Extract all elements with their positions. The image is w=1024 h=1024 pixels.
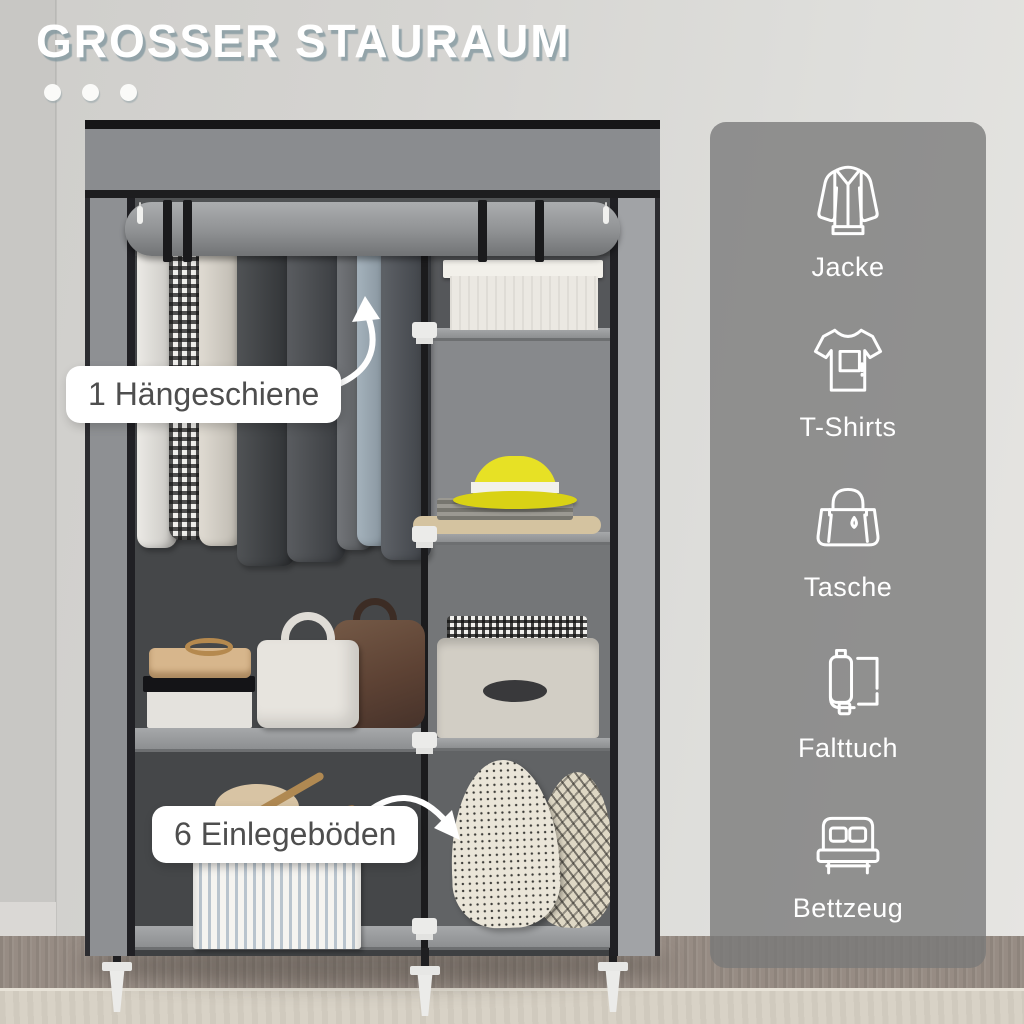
category-label: T-Shirts <box>799 412 896 443</box>
plastic-foot <box>603 968 623 1012</box>
callout-shelves: 6 Einlegeböden <box>152 806 418 863</box>
cream-handbag <box>257 640 359 728</box>
dot-icon <box>120 84 137 101</box>
black-box-lid <box>143 676 255 692</box>
tshirt-icon <box>804 318 892 406</box>
striped-laundry-basket <box>193 855 361 949</box>
pole-connector <box>412 322 437 338</box>
baseboard <box>0 902 56 936</box>
headline-block: GROSSER STAURAUM <box>36 14 571 68</box>
callout-hanging-rail: 1 Hängeschiene <box>66 366 341 423</box>
zipper-pull <box>137 206 143 224</box>
storage-box <box>450 276 598 330</box>
category-label: Jacke <box>811 252 884 283</box>
callout-hanging-rail-label: 1 Hängeschiene <box>88 376 319 412</box>
dot-icon <box>44 84 61 101</box>
category-item-falttuch: Falttuch <box>798 639 898 764</box>
callout-shelves-label: 6 Einlegeböden <box>174 816 396 852</box>
dot-icon <box>82 84 99 101</box>
category-item-tshirts: T-Shirts <box>799 318 896 443</box>
wall-corner-line <box>55 0 57 936</box>
product-scene: GROSSER STAURAUM <box>0 0 1024 1024</box>
plastic-foot <box>107 968 127 1012</box>
category-overlay-panel: Jacke T-Shirts Tasche <box>710 122 986 968</box>
category-item-bettzeug: Bettzeug <box>793 799 904 924</box>
bin-handle-hole <box>483 680 547 702</box>
jacket-icon <box>804 158 892 246</box>
zipper-pull <box>603 206 609 224</box>
bed-icon <box>804 799 892 887</box>
pole-connector <box>412 918 437 934</box>
fabric-wardrobe <box>85 120 660 1010</box>
cover-strap <box>183 200 192 262</box>
yellow-hat-brim <box>453 491 577 509</box>
page-title: GROSSER STAURAUM <box>36 14 571 68</box>
wardrobe-left-side-panel <box>85 198 135 956</box>
plastic-foot-cap <box>598 962 628 971</box>
pole-connector <box>412 526 437 542</box>
left-wall <box>0 0 56 902</box>
rolled-up-cover <box>125 202 620 256</box>
cover-strap <box>478 200 487 262</box>
category-label: Bettzeug <box>793 893 904 924</box>
pole-connector <box>412 732 437 748</box>
wardrobe-top-cover <box>85 120 660 198</box>
category-item-tasche: Tasche <box>804 478 893 603</box>
plastic-foot-cap <box>410 966 440 975</box>
title-dots-decoration <box>44 84 137 101</box>
category-label: Falttuch <box>798 733 898 764</box>
category-label: Tasche <box>804 572 893 603</box>
folded-cloth-icon <box>804 639 892 727</box>
tote-bag-icon <box>804 478 892 566</box>
pole-stub <box>421 948 429 966</box>
cover-strap <box>163 200 172 262</box>
plastic-foot-cap <box>102 962 132 971</box>
category-item-jacke: Jacke <box>804 158 892 283</box>
shelf-3 <box>428 738 610 751</box>
shoe-box <box>147 690 252 728</box>
rolled-belt <box>185 638 233 656</box>
wardrobe-right-side-panel <box>610 198 660 956</box>
plastic-foot <box>415 972 435 1016</box>
cover-strap <box>535 200 544 262</box>
shelf-left-middle <box>135 728 428 752</box>
